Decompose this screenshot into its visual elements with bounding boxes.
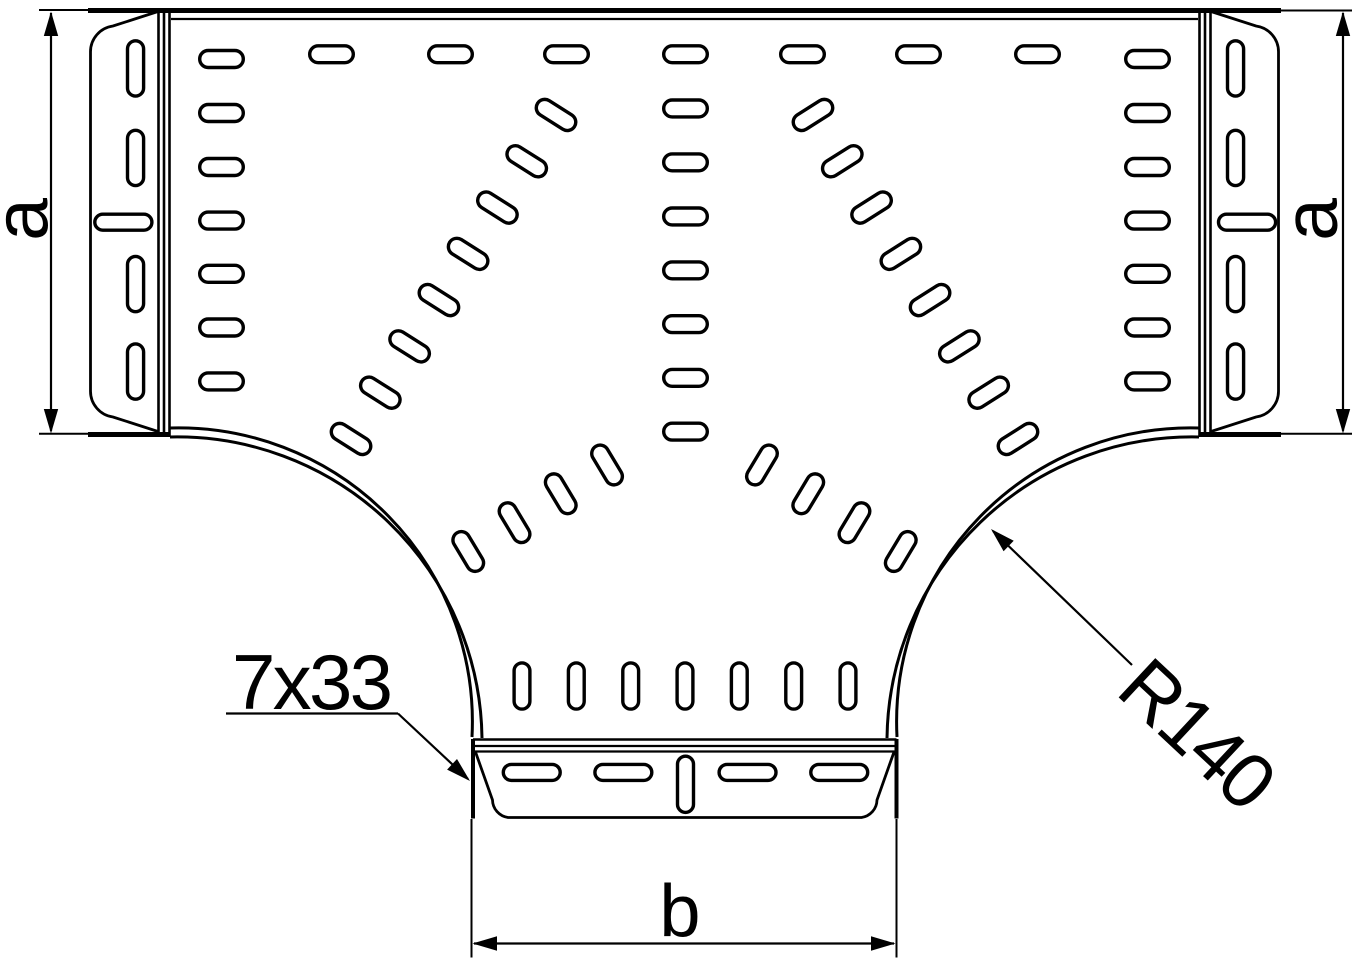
svg-text:a: a bbox=[1268, 198, 1354, 241]
svg-text:b: b bbox=[659, 870, 700, 953]
svg-text:a: a bbox=[0, 198, 64, 241]
